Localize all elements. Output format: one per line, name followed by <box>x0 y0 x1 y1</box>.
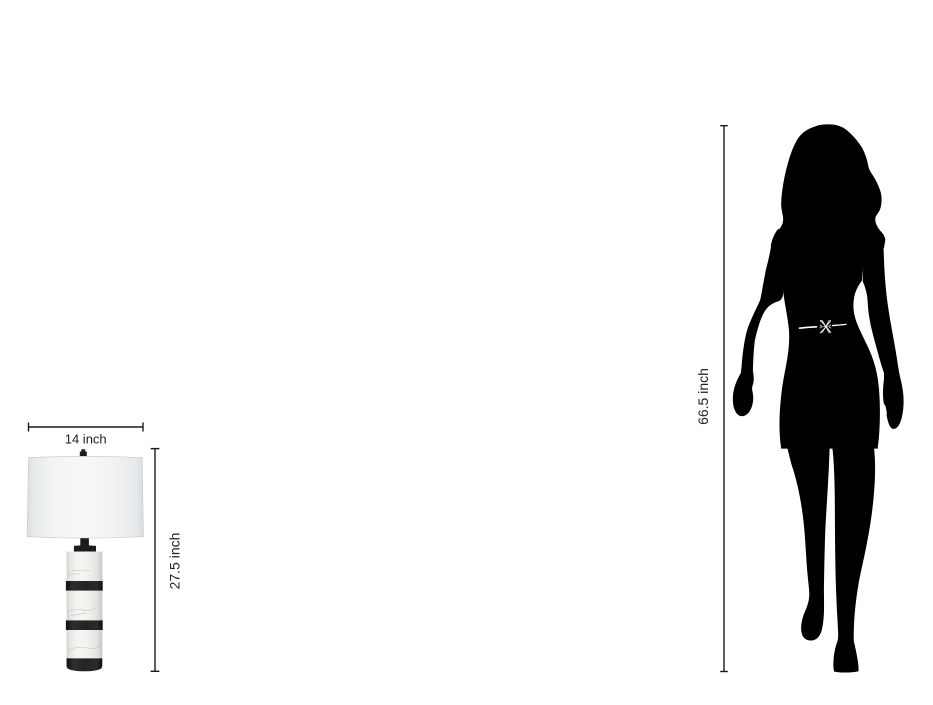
svg-text:14 inch: 14 inch <box>65 432 107 447</box>
svg-text:27.5 inch: 27.5 inch <box>167 533 183 590</box>
svg-text:66.5 inch: 66.5 inch <box>695 368 711 425</box>
